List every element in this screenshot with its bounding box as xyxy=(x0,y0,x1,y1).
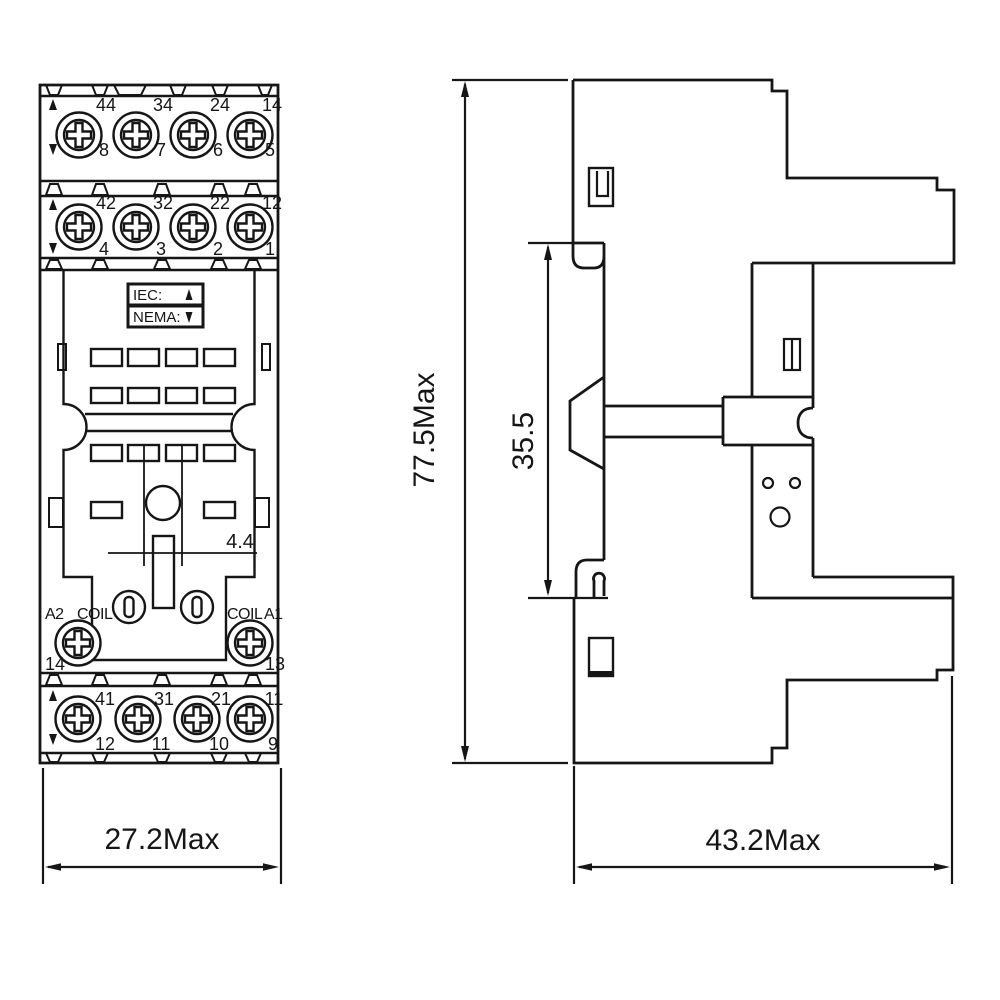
terminal-number: 2 xyxy=(213,239,223,259)
contact-label: 34 xyxy=(153,95,173,115)
coil-terminal-label: A1 xyxy=(264,606,283,623)
up-arrow-icon xyxy=(49,99,57,110)
rail-dimension-label: 35.5 xyxy=(507,412,540,470)
contact-label: 31 xyxy=(154,689,174,709)
coil-fixing-screw xyxy=(113,591,145,623)
rail-channel-lines xyxy=(85,414,233,431)
slot-dimension-label: 4.4 xyxy=(226,531,254,553)
terminal-row-3: 41 31 21 11 12 11 10 9 xyxy=(49,689,283,754)
screw-terminal-8 xyxy=(57,113,102,158)
terminal-row-1: 44 34 24 14 8 7 6 5 xyxy=(49,95,282,160)
side-slot xyxy=(255,498,269,527)
height-dimension-label: 77.5Max xyxy=(408,372,441,487)
up-arrow-icon xyxy=(49,690,57,701)
dimension-depth: 43.2Max xyxy=(574,676,952,884)
coil-area: A2 COIL COIL A1 14 13 xyxy=(45,591,285,674)
terminal-number: 9 xyxy=(268,734,278,754)
up-arrow-icon xyxy=(186,289,193,300)
screw-terminal-7 xyxy=(114,113,159,158)
down-arrow-icon xyxy=(186,312,193,323)
screw-terminal-2 xyxy=(171,205,216,250)
relay-socket-side-view: 77.5Max 35.5 43.2Max xyxy=(408,80,954,884)
contact-label: 24 xyxy=(210,95,230,115)
terminal-number: 14 xyxy=(45,654,65,674)
up-arrow-icon xyxy=(49,199,57,210)
contact-label: 21 xyxy=(211,689,231,709)
down-arrow-icon xyxy=(49,243,57,254)
dimension-rail: 35.5 xyxy=(507,243,608,598)
side-outline xyxy=(570,80,954,763)
relay-socket-dimension-drawing: 44 34 24 14 8 7 6 5 42 32 22 12 4 3 2 1 xyxy=(0,0,1000,1000)
din-rail-clip-lower xyxy=(589,638,613,676)
width-dimension-label: 27.2Max xyxy=(104,823,219,856)
center-slot xyxy=(153,536,174,608)
terminal-number: 12 xyxy=(95,734,115,754)
terminal-number: 8 xyxy=(99,140,109,160)
side-slot xyxy=(49,498,63,527)
rear-hole-large xyxy=(771,508,790,527)
coil-label: COIL xyxy=(77,606,113,623)
bottom-band-notches xyxy=(46,753,261,762)
terminal-number: 10 xyxy=(209,734,229,754)
contact-label: 14 xyxy=(262,95,282,115)
terminal-number: 7 xyxy=(156,140,166,160)
dimension-width: 27.2Max xyxy=(43,768,281,884)
terminal-number: 4 xyxy=(99,239,109,259)
rear-hole-small xyxy=(790,478,800,488)
down-arrow-icon xyxy=(49,144,57,155)
contact-label: 44 xyxy=(96,95,116,115)
side-slot xyxy=(262,344,270,370)
terminal-number: 13 xyxy=(265,654,285,674)
terminal-number: 11 xyxy=(152,734,171,754)
terminal-row-2: 42 32 22 12 4 3 2 1 xyxy=(49,193,282,259)
rear-hole-small xyxy=(763,478,773,488)
contact-label: 12 xyxy=(262,193,282,213)
top-band-notches xyxy=(46,85,272,95)
drawing-canvas: 44 34 24 14 8 7 6 5 42 32 22 12 4 3 2 1 xyxy=(0,0,1000,1000)
relay-socket-front-view: 44 34 24 14 8 7 6 5 42 32 22 12 4 3 2 1 xyxy=(40,85,285,884)
rear-slot xyxy=(784,339,800,370)
coil-terminal-label: A2 xyxy=(45,606,64,623)
center-hole xyxy=(146,486,180,520)
separator-band-notches-2 xyxy=(46,260,261,269)
terminal-number: 3 xyxy=(156,239,166,259)
contact-label: 22 xyxy=(210,193,230,213)
contact-label: 41 xyxy=(95,689,115,709)
depth-dimension-label: 43.2Max xyxy=(705,824,820,857)
contact-label: 32 xyxy=(153,193,173,213)
contact-label: 11 xyxy=(265,689,284,709)
terminal-number: 5 xyxy=(265,140,275,160)
side-slot xyxy=(58,344,66,370)
terminal-number: 6 xyxy=(213,140,223,160)
contact-label: 42 xyxy=(96,193,116,213)
screw-terminal-12 xyxy=(56,697,101,742)
din-rail-clip-upper xyxy=(589,168,613,206)
contact-openings xyxy=(91,349,235,518)
down-arrow-icon xyxy=(49,734,57,745)
coil-fixing-screw xyxy=(181,591,213,623)
iec-label: IEC: xyxy=(133,287,162,304)
screw-terminal-6 xyxy=(171,113,216,158)
terminal-number: 1 xyxy=(265,239,275,259)
coil-label: COIL xyxy=(227,606,263,623)
dimension-height: 77.5Max xyxy=(408,80,568,763)
nema-label: NEMA: xyxy=(133,309,181,326)
separator-band-notches-3 xyxy=(46,675,261,685)
screw-terminal-3 xyxy=(114,205,159,250)
standards-box: IEC: NEMA: xyxy=(128,284,203,327)
screw-terminal-4 xyxy=(57,205,102,250)
